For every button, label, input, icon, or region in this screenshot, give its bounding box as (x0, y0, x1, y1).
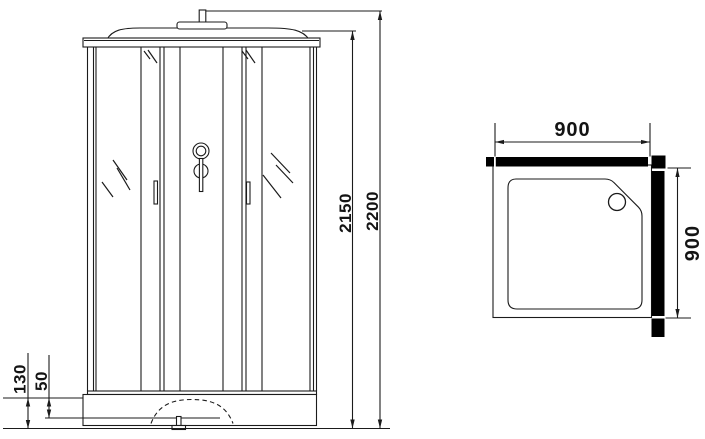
drawing-canvas: 130 50 2150 2200 900 900 (0, 0, 705, 439)
dim-label-plan-depth: 900 (682, 225, 704, 261)
pipe-base (177, 22, 227, 29)
wall-gap-left (494, 157, 496, 168)
tray-front-panel (83, 395, 317, 426)
plan-walls (486, 156, 666, 338)
plan-view (486, 156, 666, 338)
door-handle-left (154, 181, 158, 204)
technical-drawing: 130 50 2150 2200 900 900 (0, 0, 705, 439)
wall-top-bar (486, 157, 648, 167)
glass-hatch-left-panel (102, 160, 130, 197)
wall-corner-block (652, 156, 666, 169)
frame-vertical-lines (88, 47, 317, 391)
dim-label-plan-width: 900 (554, 119, 590, 141)
dim-label-cabin-height: 2150 (336, 193, 355, 233)
mixer-lever (194, 159, 208, 192)
drain-hole (609, 194, 626, 211)
glass-hatch-top-right (242, 50, 255, 63)
tray-outline (508, 179, 642, 309)
dim-label-base-step: 50 (32, 371, 51, 391)
wall-right-stub (652, 319, 665, 338)
mixer-ring-knob (193, 143, 209, 159)
glass-hatch-right-panel (263, 153, 293, 198)
front-view (3, 10, 390, 430)
cornice (83, 38, 320, 47)
dimension-arrowheads (26, 11, 382, 429)
dim-label-base-height: 130 (11, 364, 30, 394)
wall-right-bar (652, 171, 665, 316)
dim-label-total-height: 2200 (363, 191, 382, 231)
door-handle-right (247, 182, 251, 204)
plan-outer-frame (493, 165, 652, 318)
glass-hatch-top-left (144, 50, 157, 63)
front-view-dimensions (3, 11, 382, 429)
